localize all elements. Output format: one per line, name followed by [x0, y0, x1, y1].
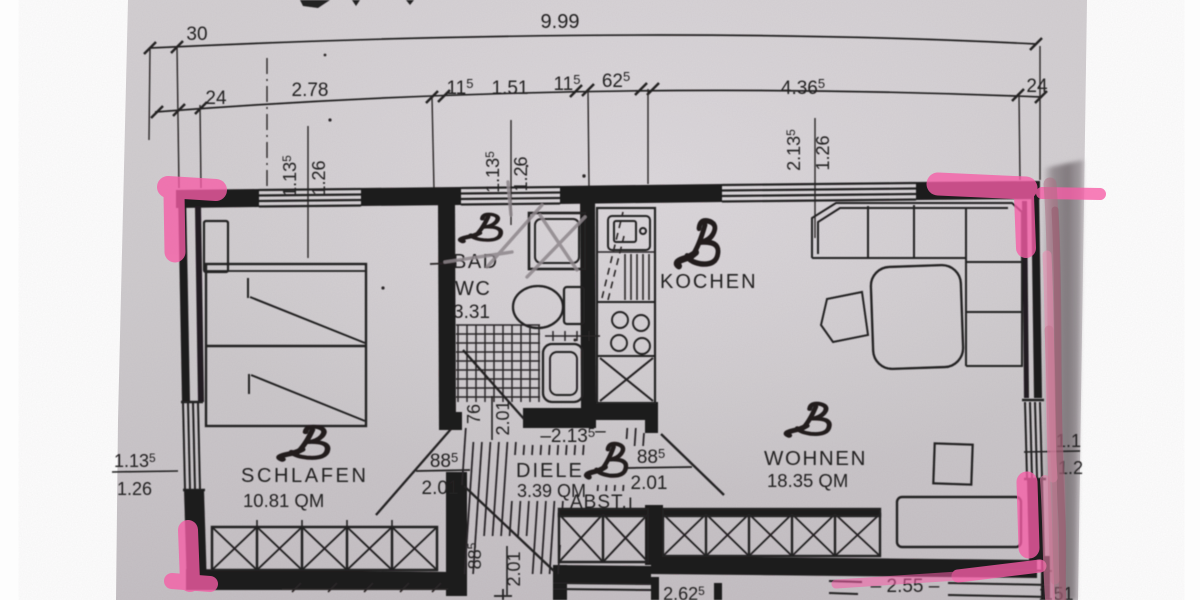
svg-text:1.51: 1.51 — [492, 78, 529, 99]
svg-text:24: 24 — [1026, 76, 1048, 97]
svg-text:2.01: 2.01 — [493, 400, 513, 435]
svg-text:SCHLAFEN: SCHLAFEN — [241, 465, 369, 487]
svg-text:2.01: 2.01 — [422, 478, 459, 499]
svg-text:24: 24 — [205, 88, 227, 109]
svg-text:1.26: 1.26 — [813, 135, 833, 170]
svg-text:30: 30 — [186, 24, 207, 45]
svg-text:2.625: 2.625 — [663, 584, 705, 600]
svg-text:2.78: 2.78 — [292, 80, 329, 101]
svg-text:1.26: 1.26 — [117, 479, 152, 499]
svg-text:18.35 QM: 18.35 QM — [767, 470, 848, 491]
svg-text:3.31: 3.31 — [453, 302, 490, 323]
svg-text:WOHNEN: WOHNEN — [764, 447, 867, 470]
svg-text:9.99: 9.99 — [541, 11, 580, 33]
svg-text:DIELE: DIELE — [516, 460, 584, 482]
svg-text:10.81 QM: 10.81 QM — [243, 490, 324, 511]
svg-text:WC: WC — [455, 278, 491, 300]
svg-text:76: 76 — [464, 404, 484, 424]
svg-text:2.01: 2.01 — [631, 473, 668, 494]
svg-text:KOCHEN: KOCHEN — [660, 271, 758, 293]
